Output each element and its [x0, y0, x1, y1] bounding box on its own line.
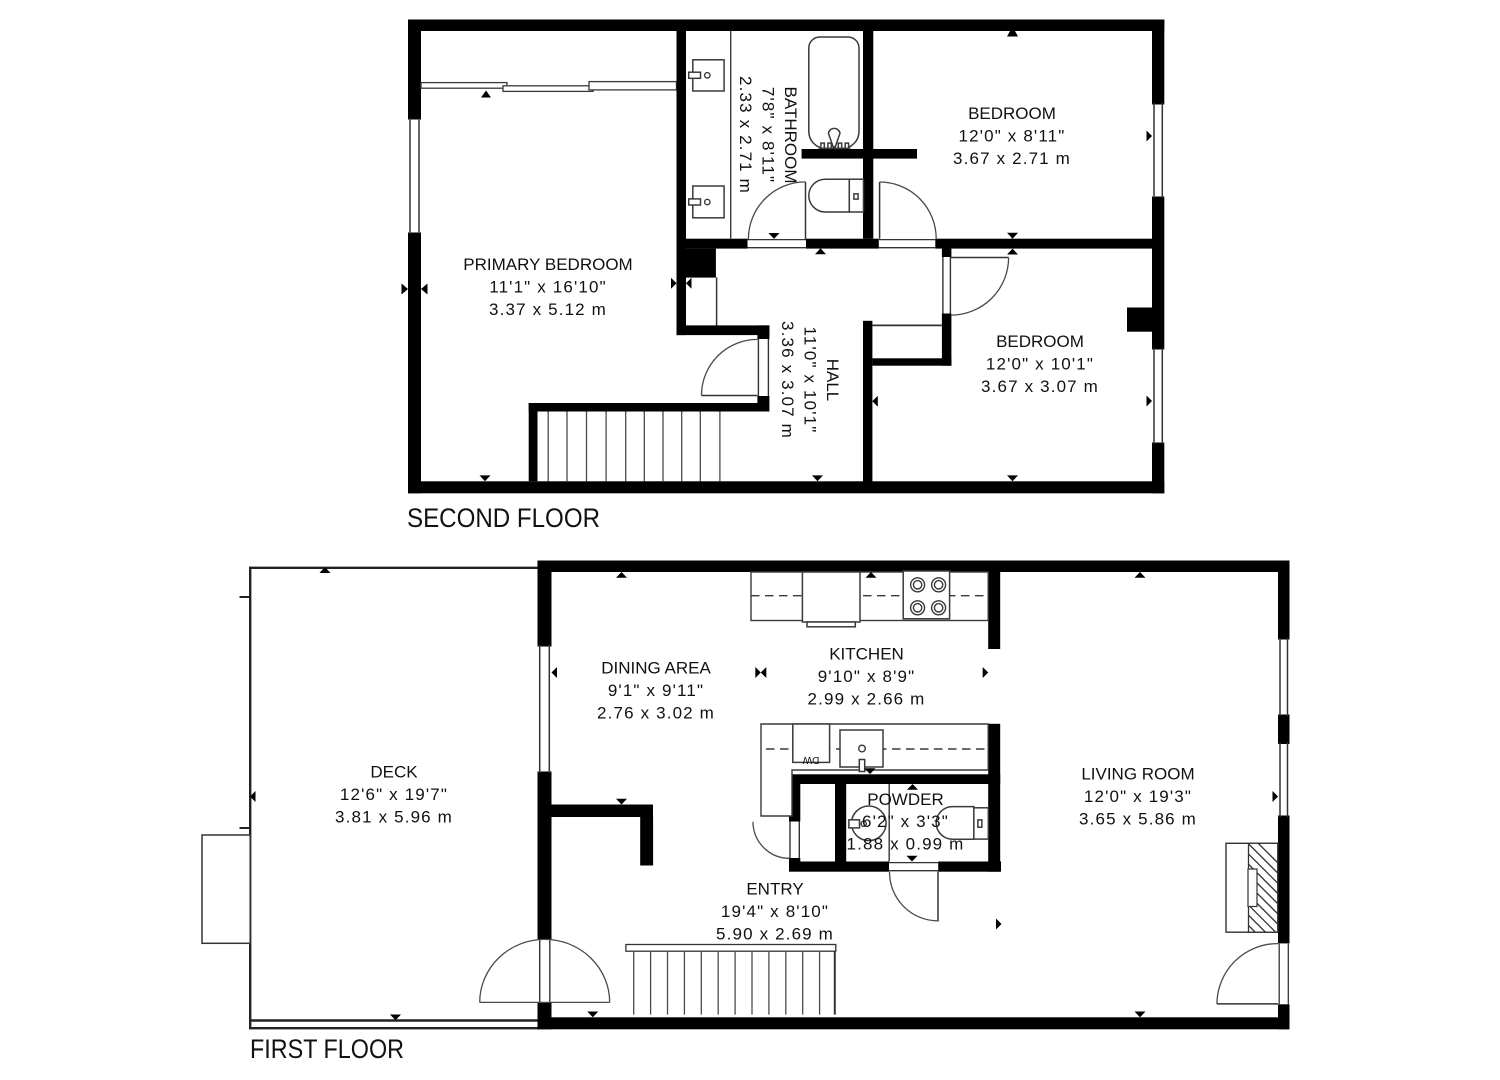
svg-text:7'8" x 8'11": 7'8" x 8'11"	[759, 87, 778, 183]
svg-text:12'0" x 10'1": 12'0" x 10'1"	[986, 355, 1094, 374]
svg-text:2.33 x 2.71 m: 2.33 x 2.71 m	[736, 76, 755, 194]
svg-text:HALL: HALL	[823, 359, 842, 402]
svg-text:3.65 x 5.86 m: 3.65 x 5.86 m	[1079, 809, 1197, 828]
svg-text:DW: DW	[802, 754, 819, 765]
svg-text:BEDROOM: BEDROOM	[968, 104, 1056, 123]
svg-text:19'4" x 8'10": 19'4" x 8'10"	[721, 902, 829, 921]
svg-text:2.99 x 2.66 m: 2.99 x 2.66 m	[808, 689, 926, 708]
svg-text:KITCHEN: KITCHEN	[829, 645, 904, 664]
svg-text:BATHROOM: BATHROOM	[781, 87, 800, 184]
svg-text:3.81 x 5.96 m: 3.81 x 5.96 m	[335, 807, 453, 826]
svg-text:DECK: DECK	[370, 763, 418, 782]
svg-text:3.36 x 3.07 m: 3.36 x 3.07 m	[778, 321, 797, 439]
svg-text:11'0" x 10'1": 11'0" x 10'1"	[801, 327, 820, 434]
svg-text:12'0" x 19'3": 12'0" x 19'3"	[1084, 787, 1192, 806]
svg-text:LIVING ROOM: LIVING ROOM	[1081, 765, 1194, 784]
svg-text:9'10" x 8'9": 9'10" x 8'9"	[818, 667, 916, 686]
svg-text:FIRST FLOOR: FIRST FLOOR	[250, 1034, 404, 1064]
svg-text:1.88 x 0.99 m: 1.88 x 0.99 m	[847, 835, 965, 854]
svg-text:6'2" x 3'3": 6'2" x 3'3"	[862, 812, 949, 831]
svg-text:2.76 x 3.02 m: 2.76 x 3.02 m	[597, 703, 715, 722]
svg-text:9'1" x 9'11": 9'1" x 9'11"	[608, 681, 704, 700]
svg-text:PRIMARY BEDROOM: PRIMARY BEDROOM	[463, 255, 632, 274]
svg-text:12'0" x 8'11": 12'0" x 8'11"	[959, 126, 1066, 145]
svg-text:ENTRY: ENTRY	[746, 880, 803, 899]
svg-text:12'6" x 19'7": 12'6" x 19'7"	[340, 785, 448, 804]
svg-text:3.67 x 2.71 m: 3.67 x 2.71 m	[953, 149, 1071, 168]
svg-text:11'1" x 16'10": 11'1" x 16'10"	[489, 277, 607, 296]
svg-text:5.90 x 2.69 m: 5.90 x 2.69 m	[716, 924, 834, 943]
svg-text:BEDROOM: BEDROOM	[996, 332, 1084, 351]
svg-text:POWDER: POWDER	[867, 790, 944, 809]
svg-text:3.37 x 5.12 m: 3.37 x 5.12 m	[489, 300, 607, 319]
svg-text:SECOND FLOOR: SECOND FLOOR	[407, 503, 600, 533]
svg-text:DINING AREA: DINING AREA	[601, 659, 711, 678]
svg-text:3.67 x 3.07 m: 3.67 x 3.07 m	[981, 377, 1099, 396]
